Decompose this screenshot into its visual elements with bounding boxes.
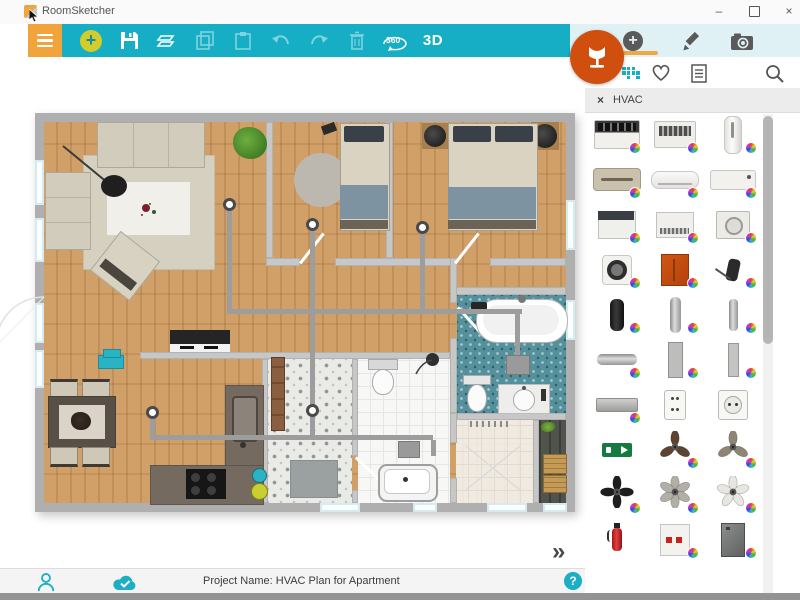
add-item-button[interactable]: +: [72, 24, 110, 57]
color-options-badge: [745, 232, 757, 244]
color-options-badge: [629, 367, 641, 379]
toilet[interactable]: [372, 369, 394, 395]
catalog-panel: × HVAC: [585, 57, 800, 593]
product-mini-split-ac[interactable]: [646, 157, 704, 202]
storage-crate[interactable]: [543, 475, 567, 493]
pipe-vertical-2-icon: [729, 299, 738, 331]
arc-lamp[interactable]: [101, 175, 127, 197]
chair-icon: [583, 43, 611, 71]
copy-button: [186, 24, 224, 57]
wall: [450, 413, 457, 443]
bathtub[interactable]: [378, 464, 438, 502]
hvac-node[interactable]: [306, 218, 319, 231]
fire-extinguisher-icon: [612, 528, 622, 551]
fire-hose-cabinet-icon: [660, 524, 690, 556]
main-menu-button[interactable]: [28, 24, 62, 57]
app-window: RoomSketcher – × +: [0, 0, 800, 600]
paste-icon: [235, 31, 251, 50]
dining-table[interactable]: [48, 396, 116, 448]
wall-outlet-double-icon: [664, 390, 686, 420]
wall: [450, 478, 457, 503]
main-toolbar: +: [62, 24, 570, 57]
project-name-label: Project Name: HVAC Plan for Apartment: [203, 575, 400, 587]
color-options-badge: [629, 277, 641, 289]
heart-icon: [651, 64, 671, 82]
redo-icon: [309, 34, 329, 48]
product-vent-grille-2[interactable]: [646, 562, 704, 593]
layers-button[interactable]: [148, 24, 186, 57]
product-vacuum-cleaner[interactable]: [704, 247, 762, 292]
pipe-vertical-icon: [670, 297, 681, 333]
duct-vertical-icon: [668, 342, 683, 378]
redo-button: [300, 24, 338, 57]
pencil-icon: [682, 31, 702, 51]
product-duct-vertical[interactable]: [646, 337, 704, 382]
subtab-product-list[interactable]: [686, 62, 712, 84]
scrollbar-thumb[interactable]: [763, 116, 773, 344]
save-icon: [120, 31, 139, 50]
color-options-badge: [745, 502, 757, 514]
color-options-badge: [629, 502, 641, 514]
hvac-node[interactable]: [146, 406, 159, 419]
product-wall-ac-white[interactable]: [704, 157, 762, 202]
color-options-badge: [629, 232, 641, 244]
undo-icon: [271, 34, 291, 48]
product-grid: [588, 112, 762, 593]
view-360-icon: 360: [380, 30, 410, 52]
wall: [335, 258, 455, 266]
wall: [266, 258, 300, 266]
kitchen-counter-bottom[interactable]: [150, 465, 264, 505]
filter-bar: × HVAC: [585, 88, 800, 113]
user-icon[interactable]: [36, 572, 56, 592]
mini-split-ac-icon: [651, 171, 699, 189]
filter-label: HVAC: [613, 88, 643, 112]
plus-icon: +: [80, 30, 102, 52]
product-ac-unit-vented[interactable]: [646, 202, 704, 247]
plan-canvas[interactable]: »: [0, 57, 585, 568]
window: [566, 200, 575, 250]
color-options-badge: [687, 142, 699, 154]
close-button[interactable]: ×: [774, 0, 800, 23]
wall: [450, 287, 566, 295]
hvac-duct[interactable]: [515, 314, 520, 360]
product-ceiling-fan-black[interactable]: [588, 472, 646, 517]
help-button[interactable]: ?: [564, 572, 582, 590]
tab-camera[interactable]: [722, 28, 762, 54]
storage-crate[interactable]: [543, 454, 567, 474]
svg-text:360: 360: [386, 35, 400, 45]
color-options-badge: [745, 547, 757, 559]
color-options-badge: [629, 322, 641, 334]
color-options-badge: [745, 142, 757, 154]
round-wall-vent-icon: [602, 255, 632, 285]
entry-door: [487, 503, 527, 512]
product-ceiling-fan-white[interactable]: [704, 472, 762, 517]
header-row: +: [0, 24, 800, 57]
freestanding-tub[interactable]: [476, 299, 568, 343]
hvac-duct[interactable]: [420, 227, 425, 314]
hvac-register[interactable]: [506, 355, 530, 375]
vacuum-cleaner-icon: [725, 257, 741, 281]
subtab-search[interactable]: [761, 62, 787, 84]
header-spacer: [0, 24, 28, 57]
cloud-sync-icon[interactable]: [112, 574, 138, 591]
mouse-cursor-icon: [29, 9, 40, 23]
duct-horizontal-icon: [596, 398, 638, 412]
metal-cabinet-gray-icon: [721, 523, 745, 557]
color-options-badge: [687, 187, 699, 199]
window: [413, 503, 437, 512]
table-decor[interactable]: [142, 204, 150, 212]
layers-icon: [156, 32, 178, 50]
product-ceiling-fan-two-blade[interactable]: [704, 427, 762, 472]
wall: [266, 122, 273, 258]
wall: [450, 338, 457, 413]
product-vent-grille-1[interactable]: [588, 562, 646, 593]
title-bar: RoomSketcher – ×: [0, 0, 800, 25]
panel-scrollbar[interactable]: [763, 114, 773, 593]
minimize-button[interactable]: –: [704, 0, 734, 23]
window: [35, 218, 44, 262]
view-360-button[interactable]: 360: [376, 24, 414, 57]
shower-hose: [404, 350, 444, 380]
product-ceiling-cassette-vent[interactable]: [704, 202, 762, 247]
product-pipe-vertical[interactable]: [646, 292, 704, 337]
kitchen-counter[interactable]: [225, 385, 264, 470]
product-fire-extinguisher[interactable]: [588, 517, 646, 562]
floor-plan: [35, 113, 575, 512]
product-wall-cabinet-orange[interactable]: [646, 247, 704, 292]
wall: [533, 420, 539, 503]
exterior-door: [35, 303, 44, 343]
color-options-badge: [629, 412, 641, 424]
product-window-air-conditioner[interactable]: [646, 112, 704, 157]
hvac-node[interactable]: [306, 404, 319, 417]
speaker-lamp[interactable]: [424, 125, 446, 147]
product-ptac-air-conditioner[interactable]: [588, 112, 646, 157]
trash-icon: [349, 31, 365, 50]
wall: [450, 258, 457, 303]
product-fire-hose-cabinet[interactable]: [646, 517, 704, 562]
color-options-badge: [745, 457, 757, 469]
hall-bench[interactable]: [271, 357, 285, 431]
product-pipe-vertical-2[interactable]: [704, 292, 762, 337]
color-options-badge: [745, 367, 757, 379]
product-wall-ac-beige[interactable]: [588, 157, 646, 202]
wall-cabinet-orange-icon: [661, 254, 689, 286]
hvac-node[interactable]: [223, 198, 236, 211]
tower-fan-black-icon: [610, 299, 624, 331]
color-options-badge: [745, 322, 757, 334]
status-bar: Project Name: HVAC Plan for Apartment ?: [0, 568, 585, 594]
potted-plant[interactable]: [233, 127, 267, 159]
product-wall-outlet-double[interactable]: [646, 382, 704, 427]
wall: [352, 359, 358, 456]
subtab-favorites[interactable]: [648, 62, 674, 84]
entry-door-swing: [462, 438, 532, 500]
window: [543, 503, 567, 512]
expand-panel-button[interactable]: »: [552, 538, 563, 566]
kitchen-hood-counter[interactable]: [170, 330, 230, 352]
window-bottom-edge: [0, 593, 800, 600]
copy-icon: [196, 31, 214, 50]
paste-button: [224, 24, 262, 57]
product-metal-cabinet-gray[interactable]: [704, 517, 762, 562]
furniture-mode-button[interactable]: [570, 30, 624, 84]
hvac-duct[interactable]: [431, 440, 436, 456]
product-duct-vertical-slim[interactable]: [704, 337, 762, 382]
color-options-badge: [745, 277, 757, 289]
pipe-horizontal-icon: [597, 354, 637, 365]
color-options-badge: [629, 187, 641, 199]
color-options-badge: [687, 277, 699, 289]
color-options-badge: [629, 142, 641, 154]
vanity-sink[interactable]: [498, 384, 550, 414]
product-ceiling-fan-gray[interactable]: [646, 472, 704, 517]
color-options-badge: [687, 547, 699, 559]
filter-clear-button[interactable]: ×: [597, 88, 604, 112]
color-options-badge: [687, 457, 699, 469]
product-exit-sign[interactable]: [588, 427, 646, 472]
dining-chair[interactable]: [82, 447, 110, 467]
hvac-duct[interactable]: [227, 204, 232, 314]
window: [35, 160, 44, 205]
view-3d-label: 3D: [423, 32, 443, 49]
product-round-wall-vent[interactable]: [588, 247, 646, 292]
color-options-badge: [687, 367, 699, 379]
portable-ac-tower-icon: [724, 116, 742, 154]
delete-button: [338, 24, 376, 57]
product-duct-horizontal[interactable]: [588, 382, 646, 427]
product-rooftop-ac-unit[interactable]: [588, 202, 646, 247]
window: [320, 503, 360, 512]
wall-outlet-round-icon: [718, 390, 748, 420]
list-icon: [691, 64, 707, 83]
color-options-badge: [687, 322, 699, 334]
window: [35, 350, 44, 388]
product-portable-ac-tower[interactable]: [704, 112, 762, 157]
app-title: RoomSketcher: [42, 5, 115, 17]
product-wall-outlet-round[interactable]: [704, 382, 762, 427]
plus-circle-icon: +: [623, 31, 643, 51]
product-pipe-horizontal[interactable]: [588, 337, 646, 382]
duct-vertical-slim-icon: [728, 343, 739, 377]
doormat[interactable]: [290, 460, 338, 498]
color-options-badge: [687, 232, 699, 244]
view-3d-button[interactable]: 3D: [414, 24, 452, 57]
maximize-icon: [749, 6, 760, 17]
wall: [457, 413, 566, 420]
towel-rack: [470, 421, 510, 427]
toilet[interactable]: [467, 384, 487, 412]
maximize-button[interactable]: [739, 0, 769, 23]
double-bed[interactable]: [448, 123, 538, 231]
product-vent-grille-3[interactable]: [704, 562, 762, 593]
dining-chair[interactable]: [50, 447, 78, 467]
hvac-node[interactable]: [416, 221, 429, 234]
save-button[interactable]: [110, 24, 148, 57]
product-tower-fan-black[interactable]: [588, 292, 646, 337]
color-options-badge: [687, 502, 699, 514]
placed-hvac-unit[interactable]: [98, 355, 124, 369]
wall: [352, 490, 358, 503]
color-options-badge: [745, 187, 757, 199]
undo-button: [262, 24, 300, 57]
camera-icon: [730, 32, 754, 51]
tab-draw[interactable]: [672, 28, 712, 54]
hvac-duct[interactable]: [229, 309, 522, 314]
category-grid-icon: [622, 67, 640, 80]
exit-sign-icon: [602, 443, 632, 457]
single-bed[interactable]: [340, 123, 390, 231]
search-icon: [765, 64, 784, 83]
wall: [490, 258, 566, 266]
hvac-register[interactable]: [398, 441, 420, 458]
hvac-duct[interactable]: [152, 435, 433, 440]
product-ceiling-fan-dark-wood[interactable]: [646, 427, 704, 472]
